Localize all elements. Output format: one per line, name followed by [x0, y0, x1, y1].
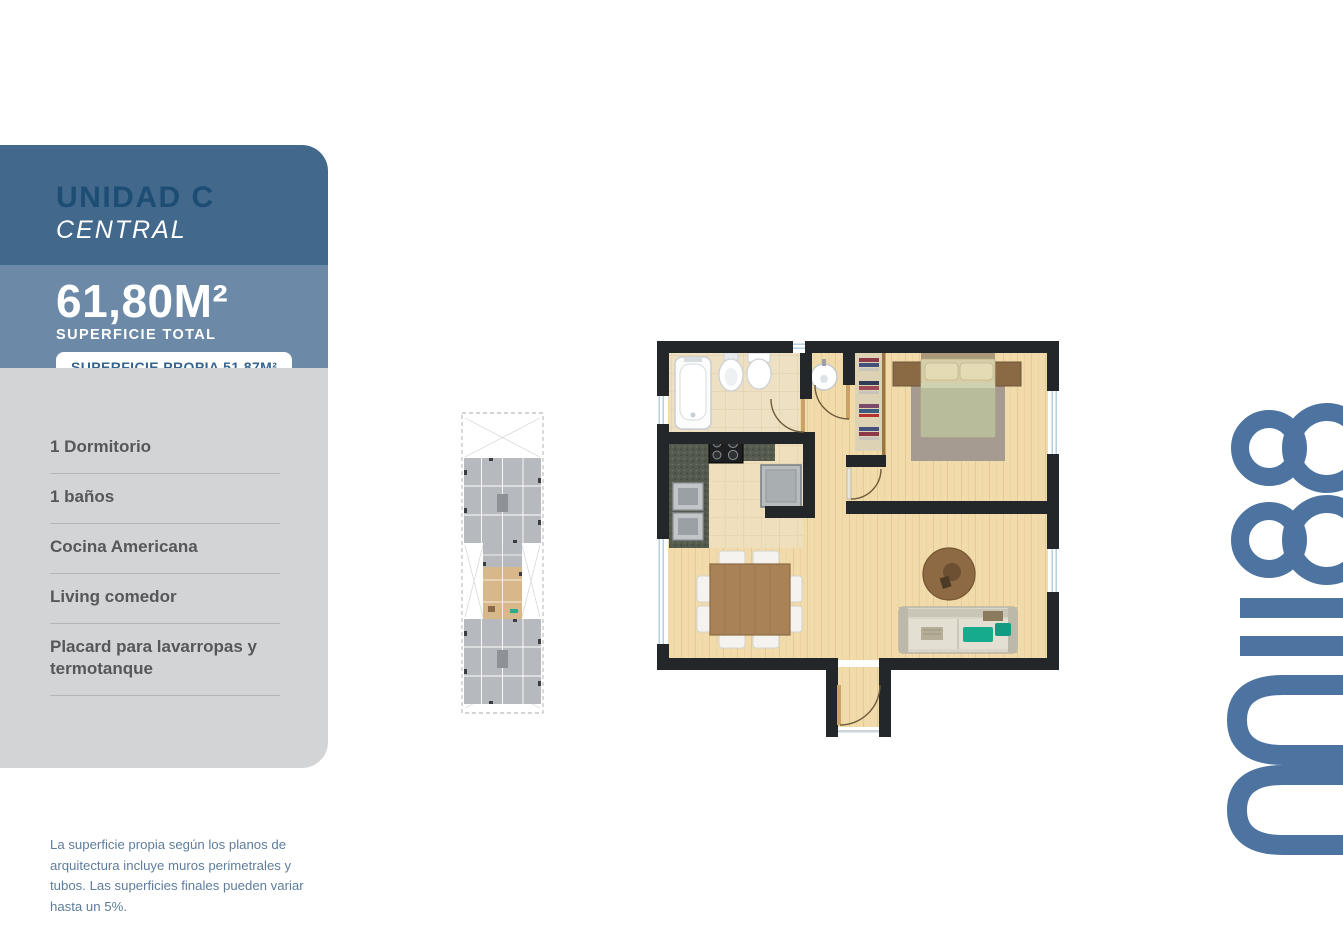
logo-letter-m	[1237, 685, 1343, 845]
window	[1048, 391, 1061, 454]
sofa-pillow	[983, 611, 1003, 621]
unit-cluster-top	[464, 458, 541, 543]
coffee-table	[923, 548, 975, 600]
window	[793, 340, 805, 353]
feature-item: 1 Dormitorio	[50, 424, 280, 474]
double-bed	[921, 353, 995, 437]
pillow	[925, 363, 958, 380]
total-area-label: SUPERFICIE TOTAL	[56, 327, 328, 343]
mii88-logo	[1215, 390, 1343, 860]
feature-item: Living comedor	[50, 574, 280, 624]
entry-threshold	[838, 727, 879, 738]
highlighted-unit-c	[483, 543, 522, 619]
sofa-pillow	[921, 627, 943, 640]
unit-card-header: UNIDAD C CENTRAL	[0, 145, 328, 265]
logo-letters-ii	[1240, 608, 1343, 646]
wardrobe-shelves	[855, 353, 886, 455]
logo-digit-8	[1240, 412, 1343, 484]
unit-subtitle: CENTRAL	[56, 215, 328, 245]
dining-table	[710, 564, 790, 635]
nightstand-right	[993, 362, 1021, 386]
unit-info-card: UNIDAD C CENTRAL 61,80M² SUPERFICIE TOTA…	[0, 145, 328, 768]
total-area-value: 61,80M²	[56, 277, 328, 325]
unit-area-band: 61,80M² SUPERFICIE TOTAL SUPERFICIE PROP…	[0, 265, 328, 368]
feature-item: 1 baños	[50, 474, 280, 524]
window	[655, 396, 668, 424]
feature-list: 1 Dormitorio 1 baños Cocina Americana Li…	[50, 424, 280, 696]
sofa	[899, 607, 1017, 653]
logo-digit-8	[1240, 504, 1343, 576]
window	[1048, 549, 1061, 592]
unit-card-body: 1 Dormitorio 1 baños Cocina Americana Li…	[0, 368, 328, 768]
toilet	[747, 353, 771, 389]
bedroom	[855, 353, 1021, 461]
vestibule-floor	[838, 667, 879, 729]
building-locator-plan	[461, 412, 544, 714]
unit-title: UNIDAD C	[56, 181, 328, 215]
teal-cushion	[995, 623, 1011, 636]
brochure-page: UNIDAD C CENTRAL 61,80M² SUPERFICIE TOTA…	[0, 0, 1343, 950]
disclaimer-text: La superficie propia según los planos de…	[50, 835, 326, 917]
window	[655, 539, 668, 644]
unit-cluster-bottom	[464, 619, 541, 704]
apartment-floor-plan	[653, 337, 1063, 749]
nightstand-left	[893, 362, 921, 386]
fridge	[761, 465, 801, 507]
bathtub	[675, 357, 711, 429]
mii88-logo-graphic	[1215, 390, 1343, 860]
teal-cushion	[963, 627, 993, 642]
feature-item: Placard para lavarropas y termotanque	[50, 624, 280, 696]
feature-item: Cocina Americana	[50, 524, 280, 574]
pillow	[960, 363, 993, 380]
